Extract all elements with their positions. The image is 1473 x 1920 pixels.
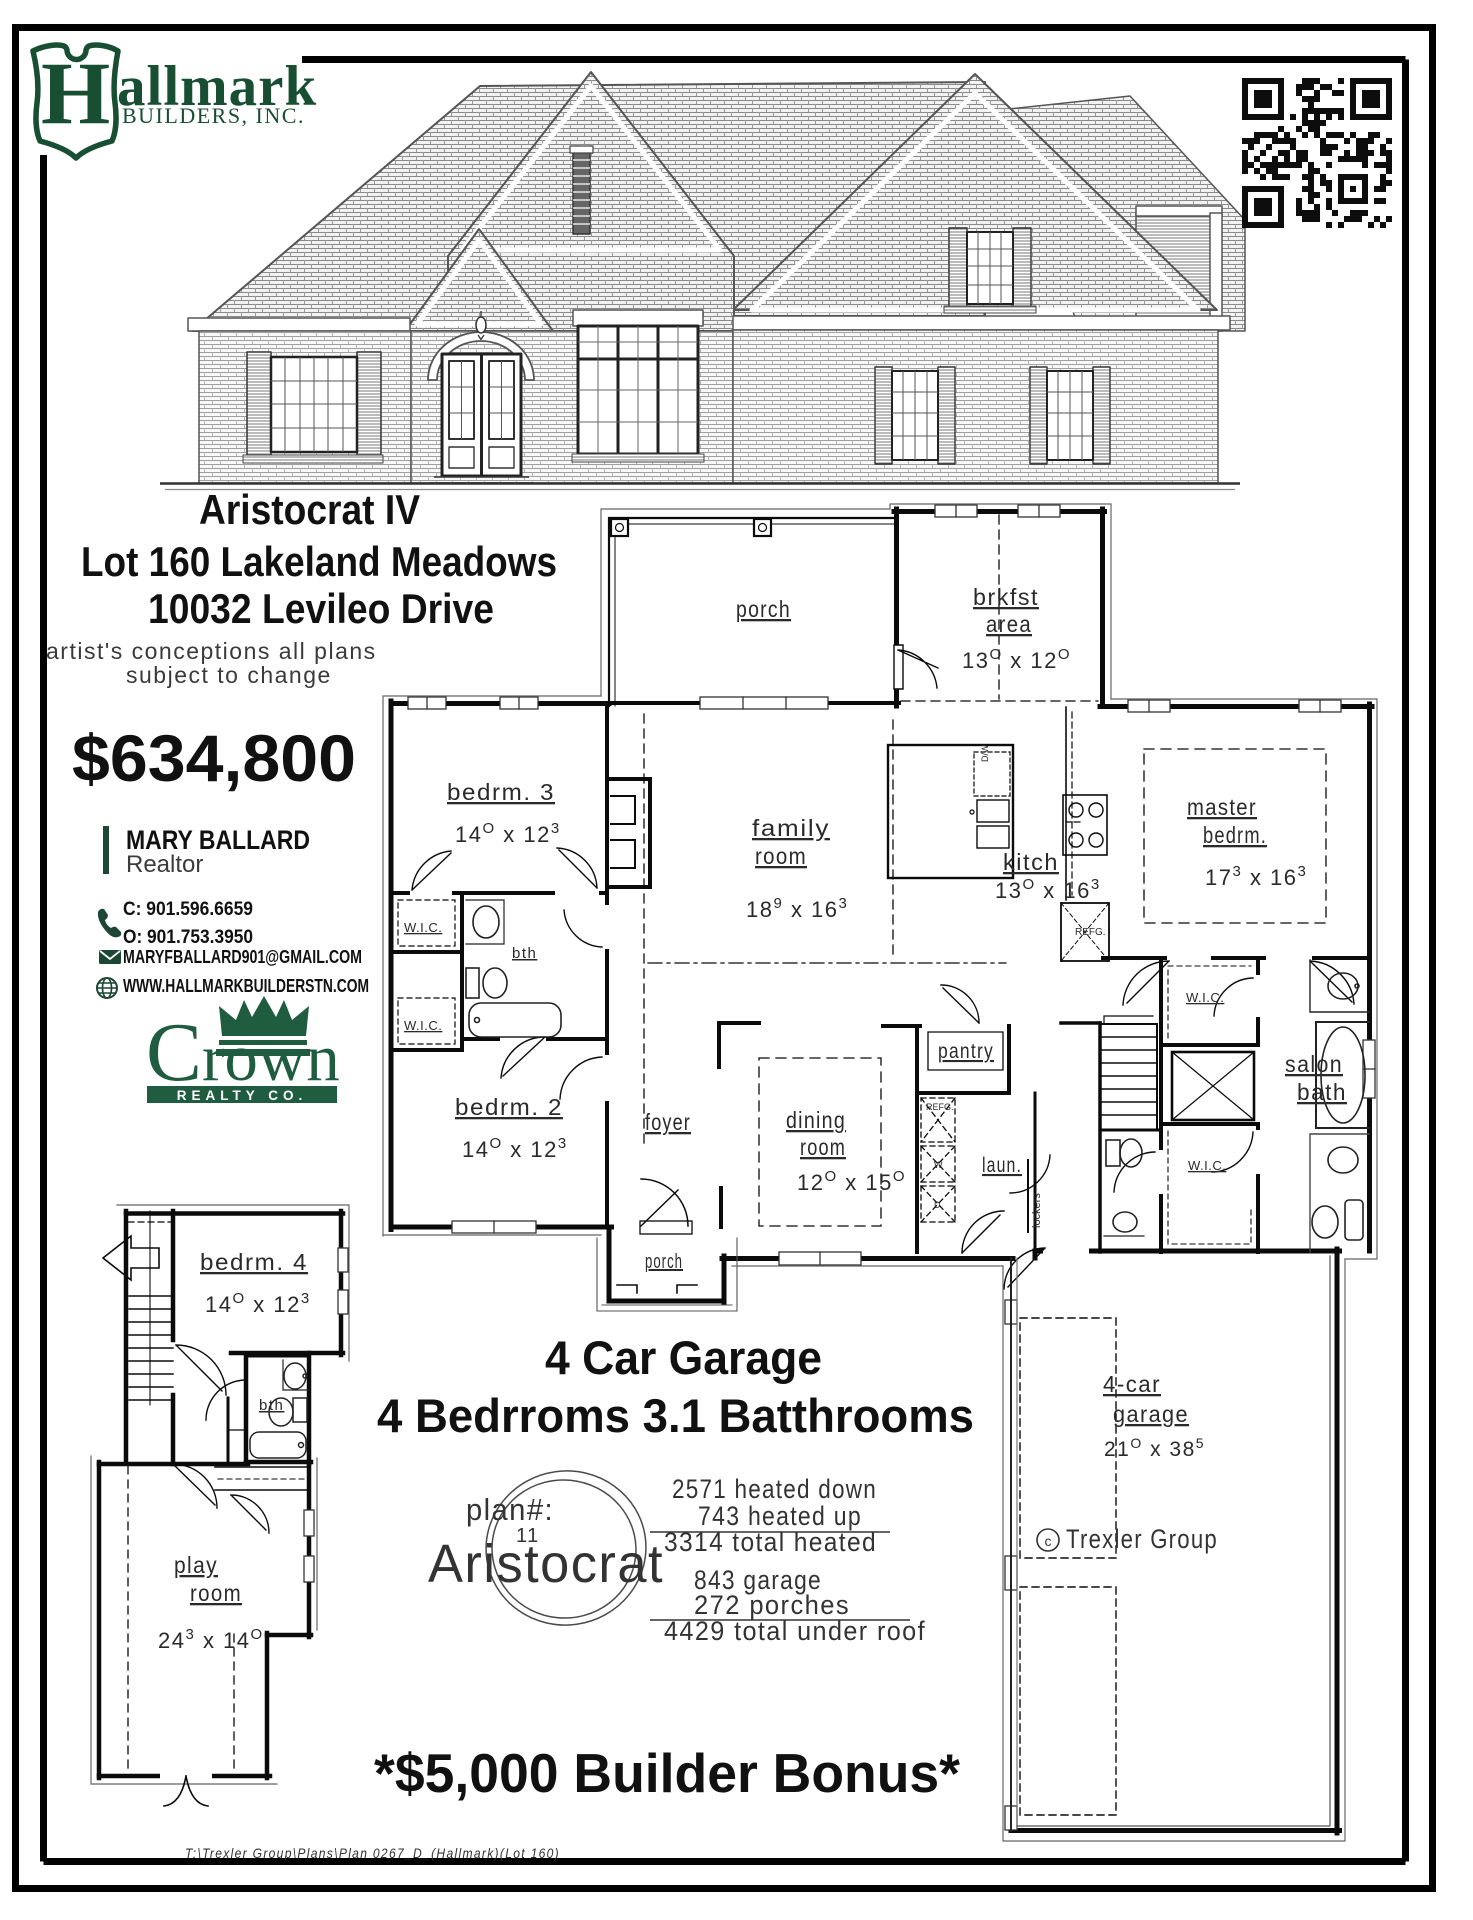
svg-text:T:\Trexler Group\Plans\Plan: T:\Trexler Group\Plans\Plan 0267_D_(Hall… [185,1845,560,1861]
svg-text:W.I.C.: W.I.C. [1186,990,1224,1005]
svg-text:room: room [190,1580,242,1606]
svg-text:REFG.: REFG. [926,1102,954,1112]
svg-text:c: c [1045,1533,1052,1549]
svg-text:laun.: laun. [982,1154,1022,1177]
svg-text:13O x 12O: 13O x 12O [962,646,1071,673]
svg-text:garage: garage [1113,1401,1189,1427]
svg-text:bth: bth [512,945,537,962]
svg-text:Realtor: Realtor [126,851,203,878]
svg-text:D/W: D/W [980,744,990,762]
svg-text:brkfst: brkfst [973,584,1039,610]
svg-text:*$5,000 Builder Bonus*: *$5,000 Builder Bonus* [374,1742,961,1804]
svg-text:189 x 163: 189 x 163 [746,895,848,922]
svg-text:dining: dining [786,1107,846,1133]
svg-text:12O x 15O: 12O x 15O [797,1168,906,1195]
svg-text:Lot 160 Lakeland Meadows: Lot 160 Lakeland Meadows [81,538,557,585]
svg-text:bth: bth [259,1397,284,1414]
svg-text:area: area [986,611,1032,637]
svg-text:room: room [755,843,807,869]
svg-text:pantry: pantry [938,1040,994,1063]
svg-text:play: play [174,1552,218,1578]
svg-text:MARYFBALLARD901@GMAIL.COM: MARYFBALLARD901@GMAIL.COM [123,947,362,967]
svg-text:2571 heated down: 2571 heated down [672,1474,877,1504]
svg-text:master: master [1187,794,1257,820]
svg-text:bedrm. 2: bedrm. 2 [455,1094,563,1120]
svg-text:REFG.: REFG. [1075,927,1106,938]
svg-text:14O x 123: 14O x 123 [462,1135,568,1162]
svg-text:REALTY CO.: REALTY CO. [177,1088,308,1103]
svg-text:lockers: lockers [1031,1193,1043,1228]
svg-text:bedrm. 4: bedrm. 4 [200,1249,308,1275]
svg-text:artist's conceptions all plans: artist's conceptions all plans [46,638,377,664]
svg-text:foyer: foyer [645,1109,691,1135]
svg-text:W: W [934,1160,943,1170]
svg-text:4 Bedrroms 3.1 Batthrooms: 4 Bedrroms 3.1 Batthrooms [377,1389,974,1442]
svg-text:Aristocrat: Aristocrat [428,1534,664,1594]
svg-text:173 x 163: 173 x 163 [1205,863,1307,890]
svg-text:family: family [752,815,830,841]
svg-text:10032 Levileo Drive: 10032 Levileo Drive [148,585,494,632]
svg-text:plan#:: plan#: [466,1492,554,1527]
svg-text:14O x 123: 14O x 123 [455,820,561,847]
svg-text:bath: bath [1297,1079,1347,1105]
svg-text:4 Car Garage: 4 Car Garage [545,1331,822,1384]
svg-text:BUILDERS, INC.: BUILDERS, INC. [122,103,305,128]
svg-text:Trexler Group: Trexler Group [1066,1524,1218,1554]
svg-text:kitch: kitch [1003,849,1059,875]
svg-text:Aristocrat IV: Aristocrat IV [199,486,420,533]
svg-text:porch: porch [736,596,791,622]
svg-text:O: 901.753.3950: O: 901.753.3950 [123,927,253,948]
svg-text:W.I.C.: W.I.C. [1188,1158,1226,1173]
svg-text:4-car: 4-car [1103,1371,1161,1397]
svg-text:13O x 163: 13O x 163 [995,876,1101,903]
svg-text:14O x 123: 14O x 123 [205,1290,311,1317]
svg-text:salon: salon [1285,1051,1343,1077]
svg-text:WWW.HALLMARKBUILDERSTN.COM: WWW.HALLMARKBUILDERSTN.COM [123,976,369,996]
svg-text:room: room [800,1134,846,1160]
svg-text:D: D [934,1200,941,1210]
svg-text:W.I.C.: W.I.C. [404,1018,442,1033]
svg-text:bedrm. 3: bedrm. 3 [447,779,555,805]
svg-text:bedrm.: bedrm. [1203,822,1267,848]
svg-text:subject to change: subject to change [126,662,332,688]
svg-text:21O x 385: 21O x 385 [1104,1435,1205,1461]
svg-text:$634,800: $634,800 [72,721,356,795]
svg-text:H: H [41,45,110,143]
svg-text:C: 901.596.6659: C: 901.596.6659 [123,899,253,920]
svg-text:W.I.C.: W.I.C. [404,920,442,935]
svg-text:porch: porch [645,1251,683,1273]
svg-text:243 x 14O: 243 x 14O [158,1626,264,1653]
